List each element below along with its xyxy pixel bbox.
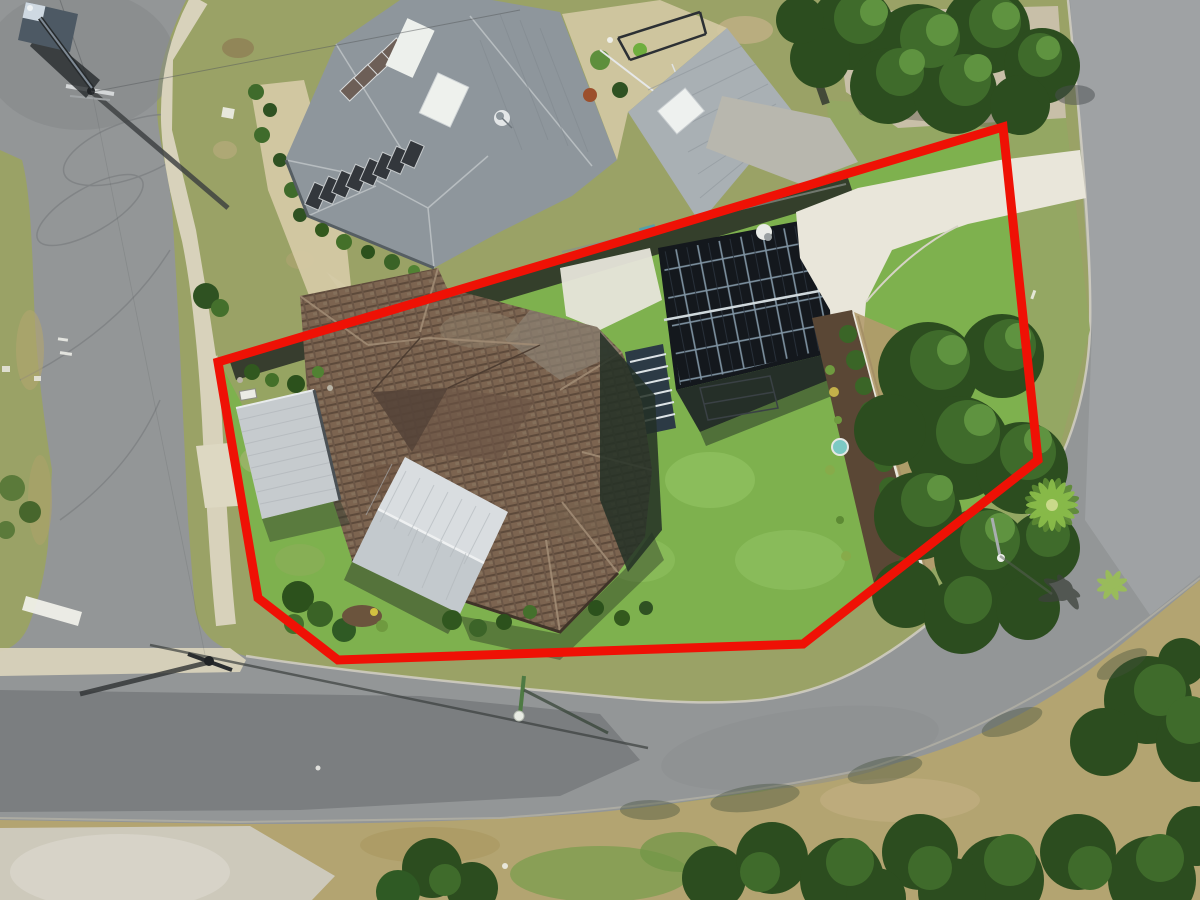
screenshot-root [0,0,1200,900]
aerial-photo [0,0,1200,900]
bird-bath [832,439,848,455]
white-paver [221,107,235,119]
